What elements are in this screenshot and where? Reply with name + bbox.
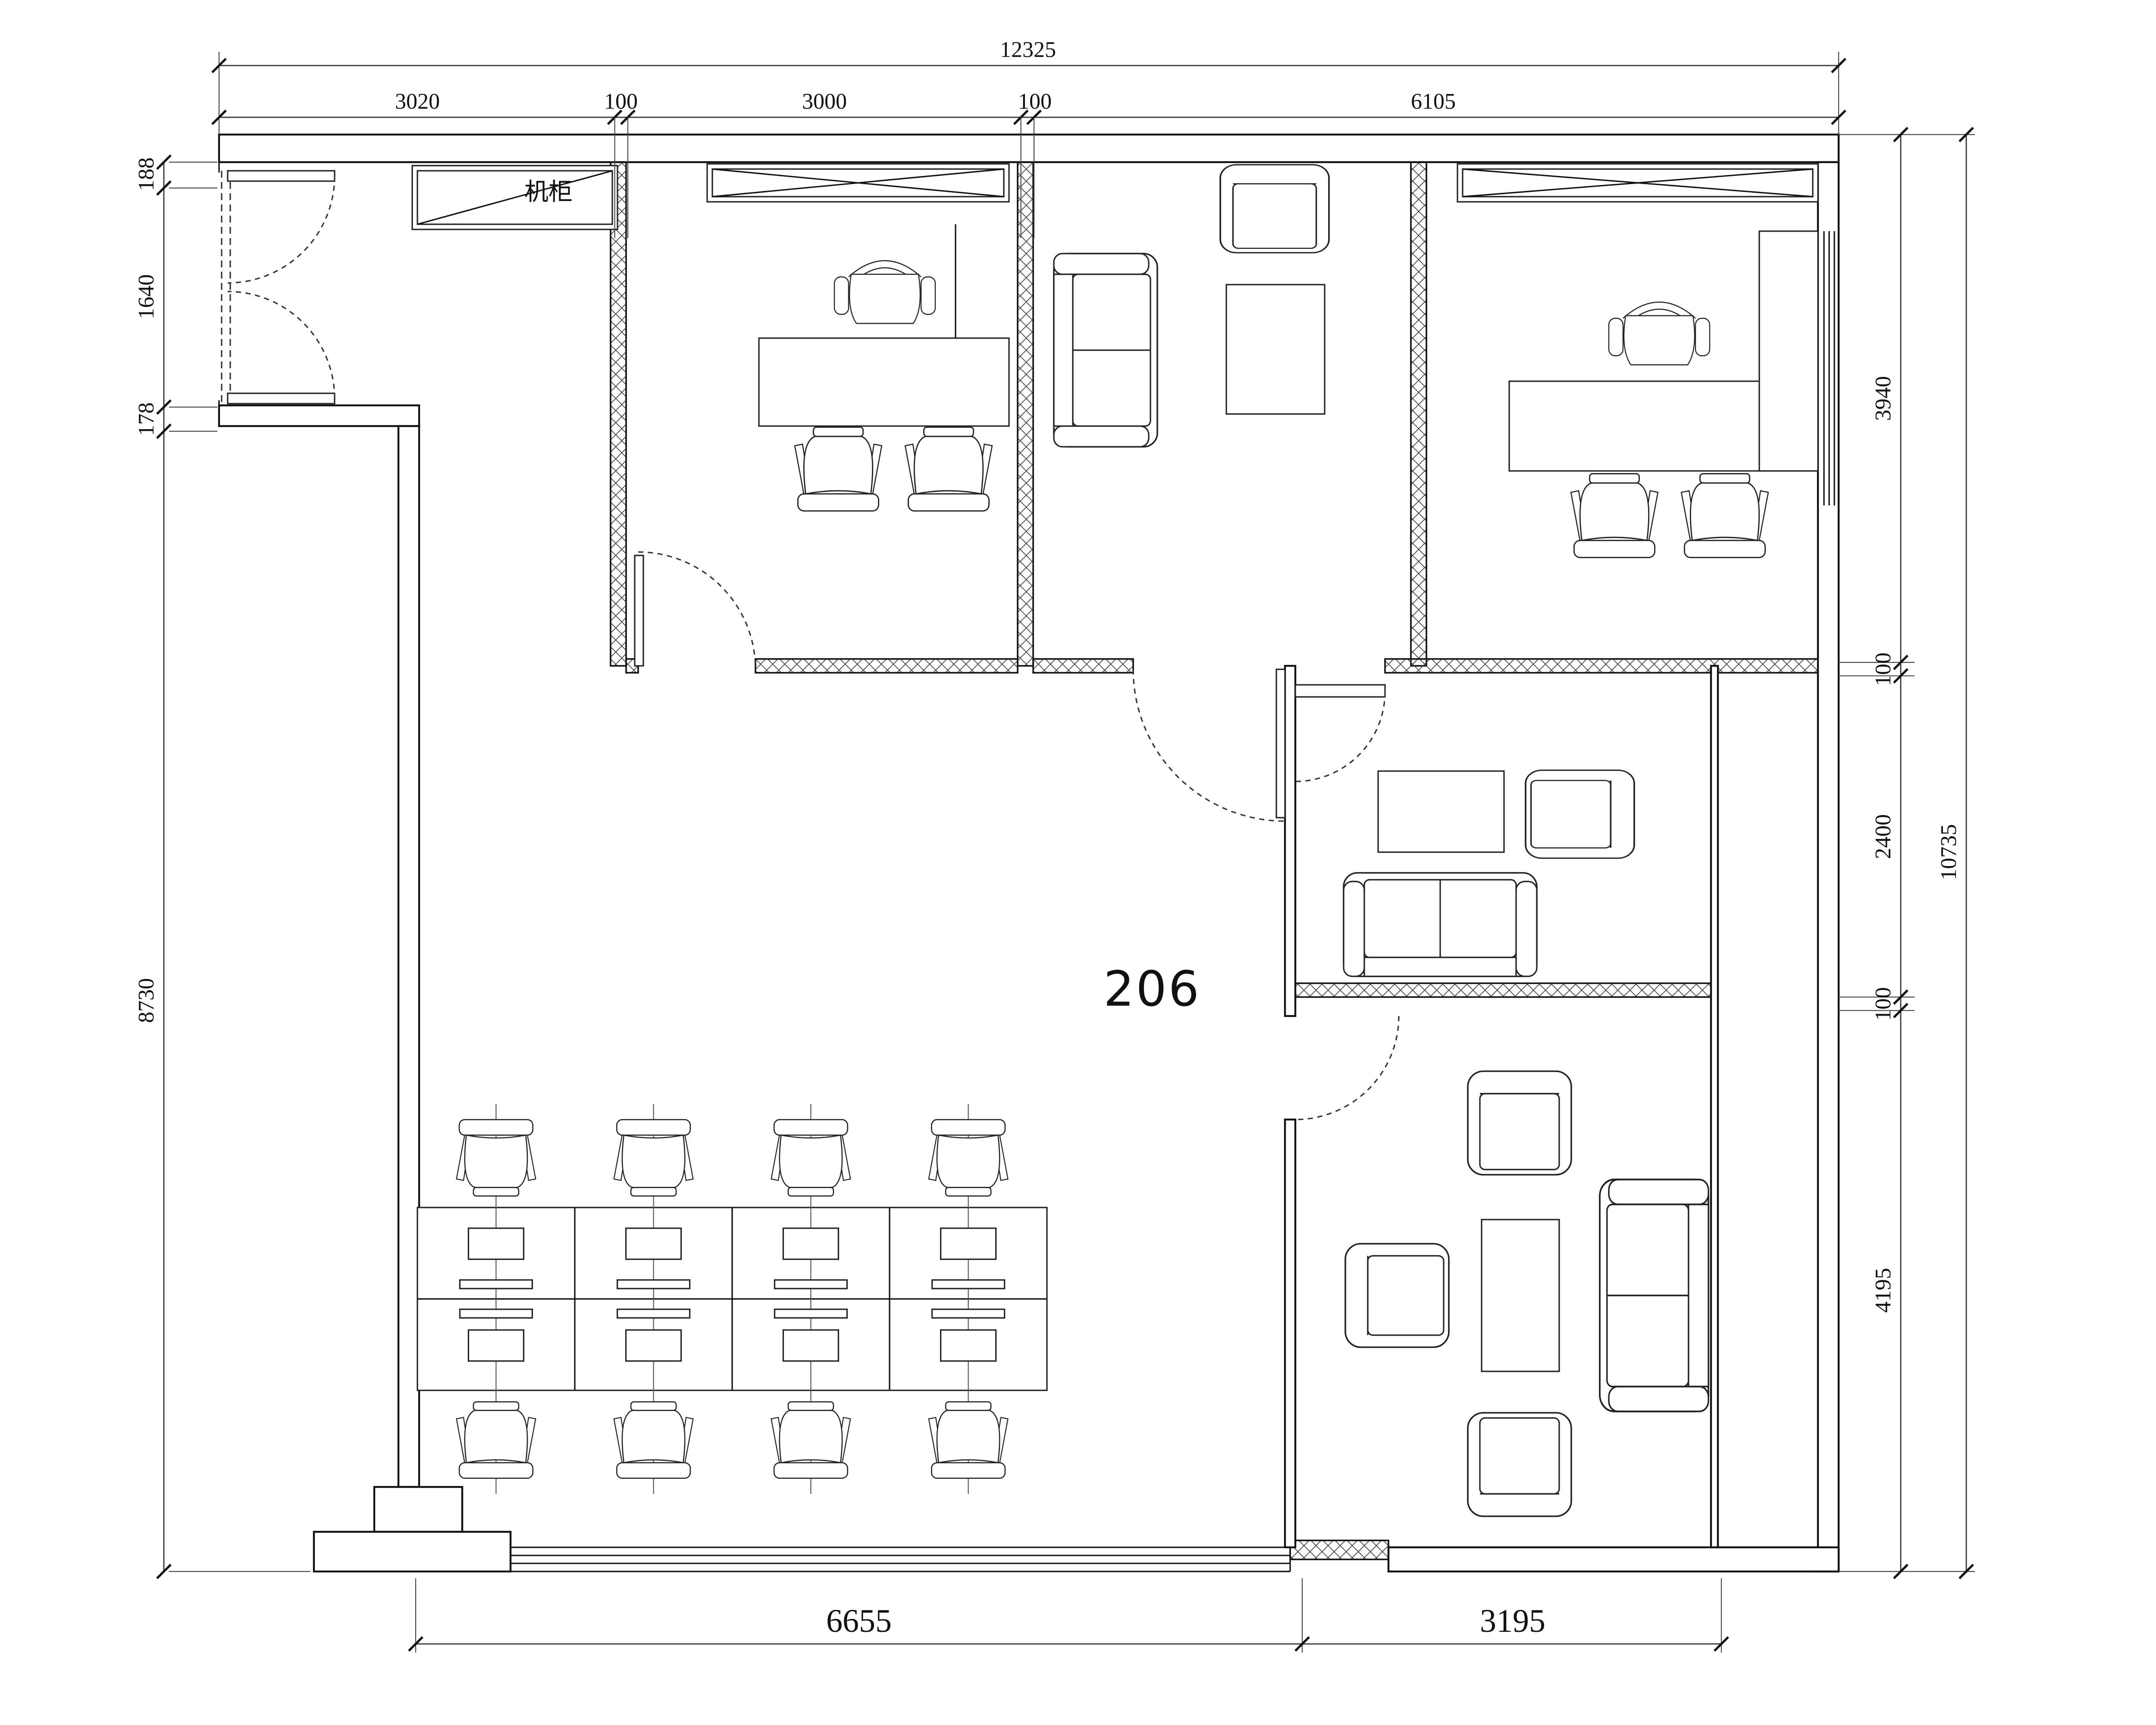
dim-right-seg1: 3940 [1871, 376, 1896, 421]
task-chair [457, 1402, 536, 1478]
dim-right-seg2: 100 [1871, 652, 1896, 686]
corner-pier-upper [374, 1487, 462, 1532]
dim-top-seg3: 3000 [802, 89, 847, 114]
office2-door [1133, 669, 1285, 821]
lounge-armchair-top [1468, 1071, 1571, 1175]
lounge-door [1295, 1016, 1399, 1120]
task-chair [929, 1402, 1008, 1478]
wall-a-seg3 [1033, 659, 1133, 673]
office3-wardrobe [1457, 164, 1818, 202]
dim-left-seg4: 8730 [134, 978, 159, 1023]
dim-top-seg2: 100 [604, 89, 638, 114]
dim-bottom: 6655 3195 [409, 1578, 1728, 1653]
dim-right-total: 10735 [1937, 824, 1961, 880]
entrance-door-arc-bottom [228, 292, 335, 398]
dim-top-seg4: 100 [1018, 89, 1052, 114]
dim-left-seg1: 188 [134, 157, 159, 191]
monitor [626, 1330, 681, 1361]
lounge-coffee-table [1482, 1220, 1559, 1371]
monitor [783, 1330, 838, 1361]
monitor [468, 1228, 523, 1259]
keyboard [460, 1280, 532, 1289]
entrance-door-arc-top [228, 176, 335, 283]
dim-top-total: 12325 [1000, 38, 1056, 62]
dim-left: 188 1640 178 8730 [134, 155, 310, 1578]
dim-left-seg2: 1640 [134, 274, 159, 319]
dim-top-seg5: 6105 [1411, 89, 1456, 114]
bottom-wall-hatched [1290, 1540, 1388, 1559]
lounge [1345, 1071, 1708, 1516]
floor-plan-page: 机柜 [0, 0, 2156, 1725]
office1-guest-chair-1 [795, 427, 882, 511]
bottom-window-band [511, 1547, 1290, 1571]
floor-plan-canvas: 机柜 [0, 0, 2156, 1725]
workstation-cluster [417, 1104, 1047, 1494]
center-wall-upper [1285, 666, 1295, 1016]
bottom-wall-solid [1388, 1547, 1839, 1571]
office3-executive-chair [1609, 302, 1710, 365]
center-wall-lower [1285, 1120, 1295, 1547]
server-cabinet-label: 机柜 [524, 178, 573, 205]
monitor [783, 1228, 838, 1259]
task-chair [929, 1120, 1008, 1196]
wall-b-hatched [1295, 983, 1711, 997]
dim-right: 3940 100 2400 100 4195 10735 [1839, 128, 1975, 1578]
entrance-double-door [222, 171, 335, 404]
keyboard [617, 1309, 690, 1318]
task-chair [614, 1402, 693, 1478]
entrance-door-leaf-top [228, 171, 335, 181]
office2 [1054, 165, 1329, 447]
keyboard [617, 1280, 690, 1289]
dim-bottom-seg2: 3195 [1480, 1603, 1545, 1639]
monitor [468, 1330, 523, 1361]
keyboard [774, 1309, 847, 1318]
wall-a-seg2 [755, 659, 1018, 673]
partition-3 [1411, 162, 1426, 666]
corner-pier-base [314, 1532, 511, 1571]
server-cabinet: 机柜 [412, 166, 617, 229]
office1 [759, 224, 1009, 511]
meeting-room-table [1378, 771, 1504, 852]
office1-wardrobe [707, 164, 1009, 202]
dim-right-seg5: 4195 [1871, 1268, 1896, 1313]
keyboard [932, 1280, 1005, 1289]
office1-guest-chair-2 [905, 427, 992, 511]
monitor [941, 1330, 996, 1361]
dim-right-seg3: 2400 [1871, 814, 1896, 859]
meeting-room-sofa [1344, 873, 1537, 976]
office1-executive-chair [834, 261, 935, 324]
right-wall [1818, 162, 1839, 1571]
keyboard [460, 1309, 532, 1318]
office2-sofa [1054, 254, 1157, 447]
keyboard [932, 1309, 1005, 1318]
task-chair [771, 1402, 851, 1478]
office2-coffee-table [1226, 285, 1325, 414]
dim-left-seg3: 178 [134, 402, 159, 436]
office2-armchair [1220, 165, 1329, 253]
office3-guest-chair-2 [1681, 474, 1768, 557]
dim-bottom-seg1: 6655 [826, 1603, 892, 1639]
keyboard [774, 1280, 847, 1289]
office1-door [635, 552, 755, 669]
lounge-sofa [1600, 1179, 1708, 1411]
left-step-wall [219, 405, 419, 426]
monitor [941, 1228, 996, 1259]
entrance-door-leaf-bottom [228, 393, 335, 404]
right-rooms-east-wall [1711, 666, 1718, 1547]
task-chair [614, 1120, 693, 1196]
meeting-room [1344, 770, 1634, 976]
lounge-armchair-bottom [1468, 1413, 1571, 1516]
partition-1 [611, 162, 626, 666]
office3-guest-chair-1 [1571, 474, 1658, 557]
task-chair [457, 1120, 536, 1196]
monitor [626, 1228, 681, 1259]
meeting-room-door [1295, 685, 1385, 781]
top-wall [219, 135, 1839, 162]
office3 [1509, 231, 1818, 558]
meeting-room-armchair [1526, 770, 1634, 858]
task-chair [771, 1120, 851, 1196]
room-number-label: 206 [1103, 961, 1201, 1017]
dim-top-seg1: 3020 [395, 89, 440, 114]
wall-a-seg4 [1385, 659, 1818, 673]
lounge-armchair-left [1345, 1244, 1449, 1347]
partition-2 [1018, 162, 1033, 666]
left-lower-wall [398, 426, 419, 1487]
office1-desk [759, 338, 1009, 426]
office3-credenza [1759, 231, 1818, 471]
dim-right-seg4: 100 [1871, 987, 1896, 1021]
